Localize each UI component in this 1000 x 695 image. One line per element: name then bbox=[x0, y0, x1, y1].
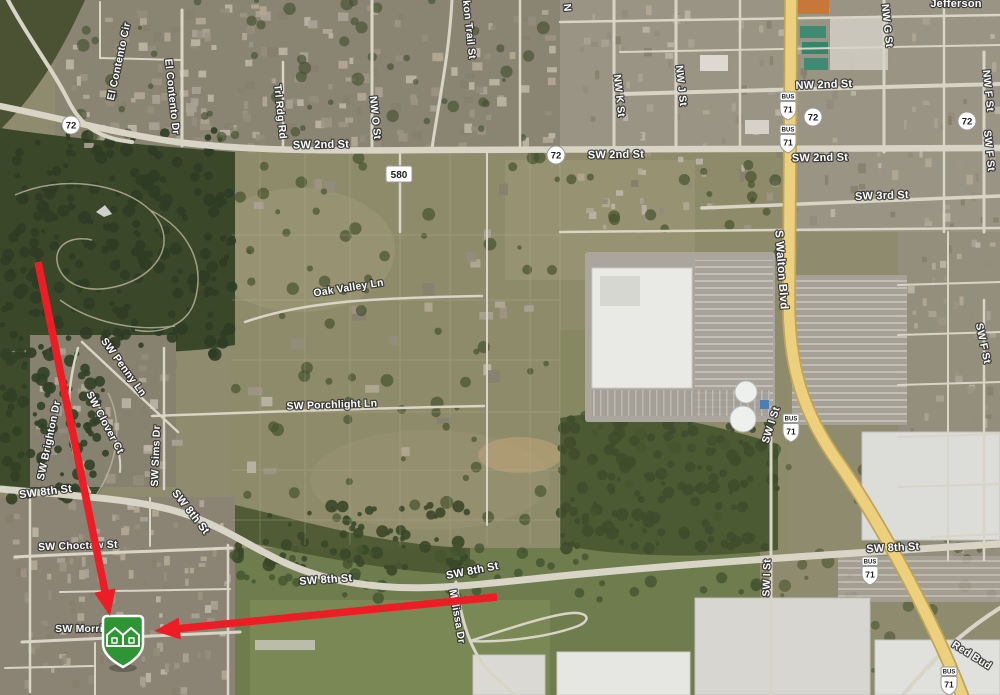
satellite-map[interactable]: El Contento CirEl Contento DrTrl Rdg Rdk… bbox=[0, 0, 1000, 695]
svg-text:BUS: BUS bbox=[782, 95, 795, 101]
route-box-shield-580: 580 bbox=[386, 166, 412, 182]
road-label-sw-morris: SW Morris bbox=[55, 623, 109, 635]
road-label-sw-sims-dr: SW Sims Dr bbox=[149, 425, 163, 487]
svg-text:71: 71 bbox=[786, 427, 796, 437]
svg-text:71: 71 bbox=[783, 138, 793, 148]
svg-text:71: 71 bbox=[944, 680, 954, 690]
svg-text:BUS: BUS bbox=[785, 417, 798, 423]
svg-text:580: 580 bbox=[391, 170, 408, 181]
road-label-sw-2nd-st: SW 2nd St bbox=[792, 152, 849, 165]
svg-text:72: 72 bbox=[66, 120, 77, 131]
svg-text:72: 72 bbox=[962, 116, 973, 127]
svg-text:71: 71 bbox=[865, 570, 875, 580]
road-label-nw-2nd-st: NW 2nd St bbox=[795, 78, 852, 92]
us-bus-71-shield: BUS71 bbox=[862, 557, 878, 585]
us-bus-71-shield: BUS71 bbox=[780, 92, 796, 120]
svg-text:BUS: BUS bbox=[782, 128, 795, 134]
road-label-n: N bbox=[561, 3, 574, 12]
road-label-sw-i-st: SW I St bbox=[760, 559, 773, 597]
state-route-shield-72: 72 bbox=[804, 108, 822, 126]
map-canvas[interactable]: El Contento CirEl Contento DrTrl Rdg Rdk… bbox=[0, 0, 1000, 695]
road-label-sw-3rd-st: SW 3rd St bbox=[855, 189, 909, 203]
road-label-jefferson: Jefferson bbox=[930, 0, 981, 10]
svg-text:72: 72 bbox=[551, 150, 562, 161]
us-bus-71-shield: BUS71 bbox=[780, 125, 796, 153]
state-route-shield-72: 72 bbox=[547, 146, 565, 164]
svg-text:71: 71 bbox=[783, 105, 793, 115]
state-route-shield-72: 72 bbox=[62, 116, 80, 134]
svg-text:72: 72 bbox=[808, 112, 819, 123]
svg-text:BUS: BUS bbox=[864, 560, 877, 566]
svg-text:BUS: BUS bbox=[943, 670, 956, 676]
us-bus-71-shield: BUS71 bbox=[783, 414, 799, 442]
road-label-sw-2nd-st: SW 2nd St bbox=[588, 149, 645, 162]
road-label-sw-2nd-st: SW 2nd St bbox=[293, 139, 350, 152]
state-route-shield-72: 72 bbox=[958, 112, 976, 130]
us-bus-71-shield: BUS71 bbox=[941, 667, 957, 695]
